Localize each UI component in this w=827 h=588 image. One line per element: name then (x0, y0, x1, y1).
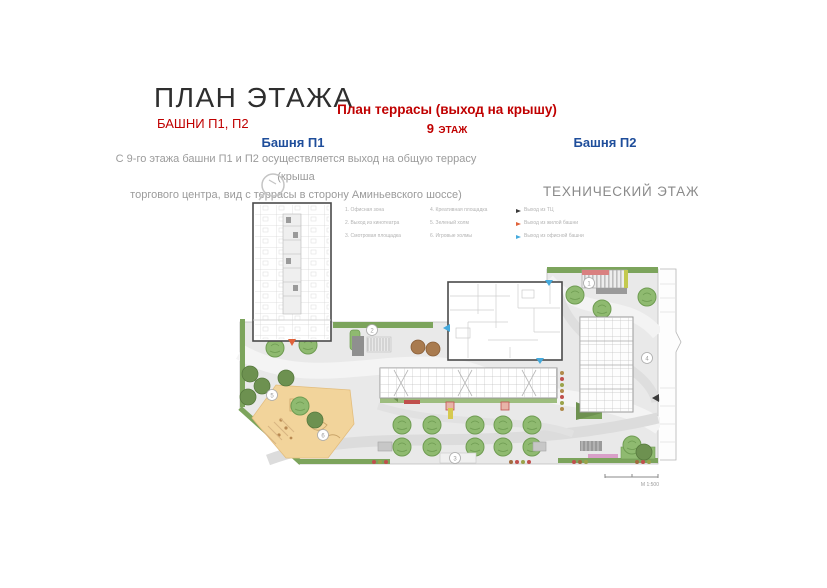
zone-marker: 5 (267, 390, 278, 401)
adjacent-building-outline (660, 269, 681, 460)
zone-marker: 4 (642, 353, 653, 364)
page-title: ПЛАН ЭТАЖА (154, 82, 354, 114)
terrace-plan-title: План террасы (выход на крышу) (337, 102, 557, 117)
tower-p1-label: Башня П1 (238, 135, 348, 150)
glass-roof-grid (580, 317, 633, 412)
tower-p1-plan (253, 203, 331, 346)
zone-marker: 6 (318, 430, 329, 441)
description-line-1: С 9-го этажа башни П1 и П2 осуществляетс… (112, 150, 480, 186)
floor-label: 9 ЭТАЖ (337, 120, 557, 138)
zone-marker: 3 (450, 453, 461, 464)
zone-marker: 1 (584, 278, 595, 289)
scale-bar: М 1:500 (605, 474, 659, 488)
terrace-floor-plan: 1 2 3 4 5 6 М 1:500 (228, 192, 698, 502)
floor-number: 9 (427, 121, 434, 136)
page-subtitle: БАШНИ П1, П2 (157, 116, 249, 131)
floor-word: ЭТАЖ (438, 125, 467, 136)
zone-marker: 2 (367, 325, 378, 336)
slide: ПЛАН ЭТАЖА БАШНИ П1, П2 План террасы (вы… (0, 0, 827, 588)
tower-p2-label: Башня П2 (550, 135, 660, 150)
scale-label: М 1:500 (641, 482, 659, 488)
tower-p2-plan (443, 280, 562, 364)
